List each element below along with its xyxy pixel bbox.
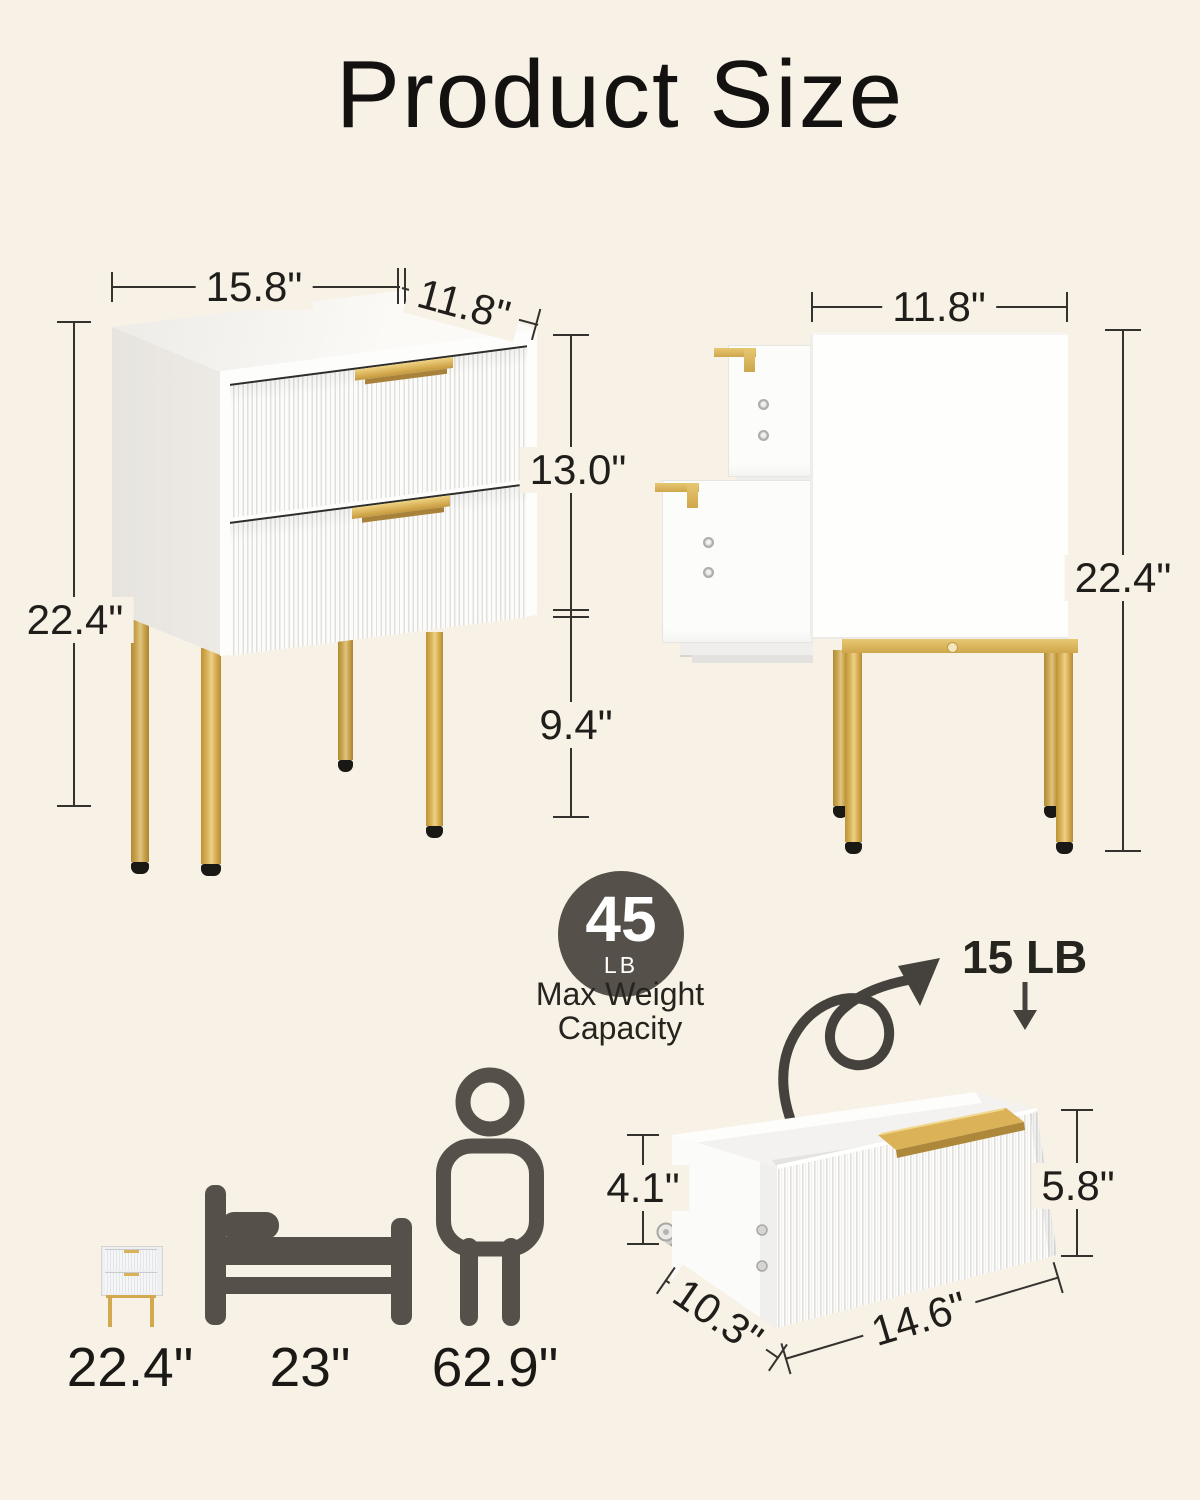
mini-drawer xyxy=(105,1249,157,1270)
dim-label-front-height: 5.8" xyxy=(1031,1163,1124,1209)
mini-body xyxy=(101,1246,163,1296)
dim-tick xyxy=(1105,329,1141,331)
product-size-infographic: Product Size 15.8" 11.8" xyxy=(0,0,1200,1500)
mini-leg xyxy=(150,1298,154,1327)
size-comparison: 22.4" 23" 62.9" xyxy=(0,0,1200,1500)
dim-tick xyxy=(627,1243,659,1245)
dim-tick xyxy=(1061,1255,1093,1257)
mini-leg xyxy=(108,1298,112,1327)
dim-tick xyxy=(553,816,589,818)
dim-label-drawer-section: 13.0" xyxy=(520,447,637,493)
dim-tick xyxy=(397,268,399,304)
mini-handle xyxy=(124,1273,139,1276)
comparison-label-nightstand: 22.4" xyxy=(67,1335,194,1399)
bed-icon xyxy=(205,1185,420,1330)
dim-tick xyxy=(111,272,113,302)
dim-tick xyxy=(57,805,91,807)
dim-label-front-width: 15.8" xyxy=(196,264,313,310)
dim-tick xyxy=(811,292,813,322)
dim-tick xyxy=(1061,1109,1093,1111)
comparison-label-person: 62.9" xyxy=(432,1335,559,1399)
dim-label-inner-height: 4.1" xyxy=(596,1165,689,1211)
dim-label-front-height: 22.4" xyxy=(17,597,134,643)
mini-apron xyxy=(106,1295,156,1298)
dim-label-side-depth: 11.8" xyxy=(882,284,996,330)
dim-tick xyxy=(553,334,589,336)
dim-label-leg-height: 9.4" xyxy=(529,702,622,748)
dim-tick xyxy=(627,1134,659,1136)
mini-handle xyxy=(124,1250,139,1253)
dim-tick xyxy=(1066,292,1068,322)
dim-line-height xyxy=(73,322,75,807)
dim-label-side-height: 22.4" xyxy=(1065,555,1182,601)
dim-tick xyxy=(553,616,589,618)
dim-tick xyxy=(1105,850,1141,852)
dim-tick xyxy=(553,609,589,611)
dim-tick xyxy=(57,321,91,323)
person-icon xyxy=(435,1065,545,1333)
mini-drawer xyxy=(105,1272,157,1293)
comparison-label-bed: 23" xyxy=(270,1335,351,1399)
nightstand-icon xyxy=(101,1246,165,1330)
